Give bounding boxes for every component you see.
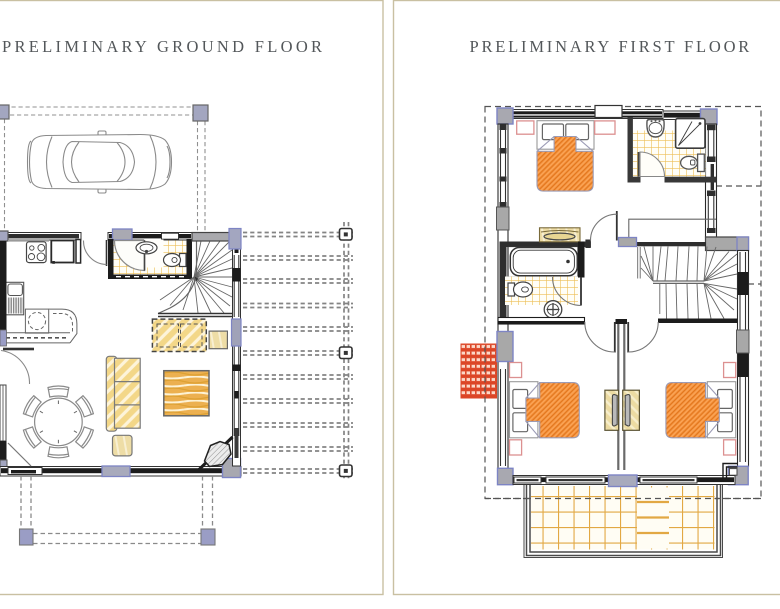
svg-text:PRELIMINARY GROUND FLOOR: PRELIMINARY GROUND FLOOR xyxy=(2,37,325,56)
svg-text:PRELIMINARY FIRST FLOOR: PRELIMINARY FIRST FLOOR xyxy=(470,37,753,56)
